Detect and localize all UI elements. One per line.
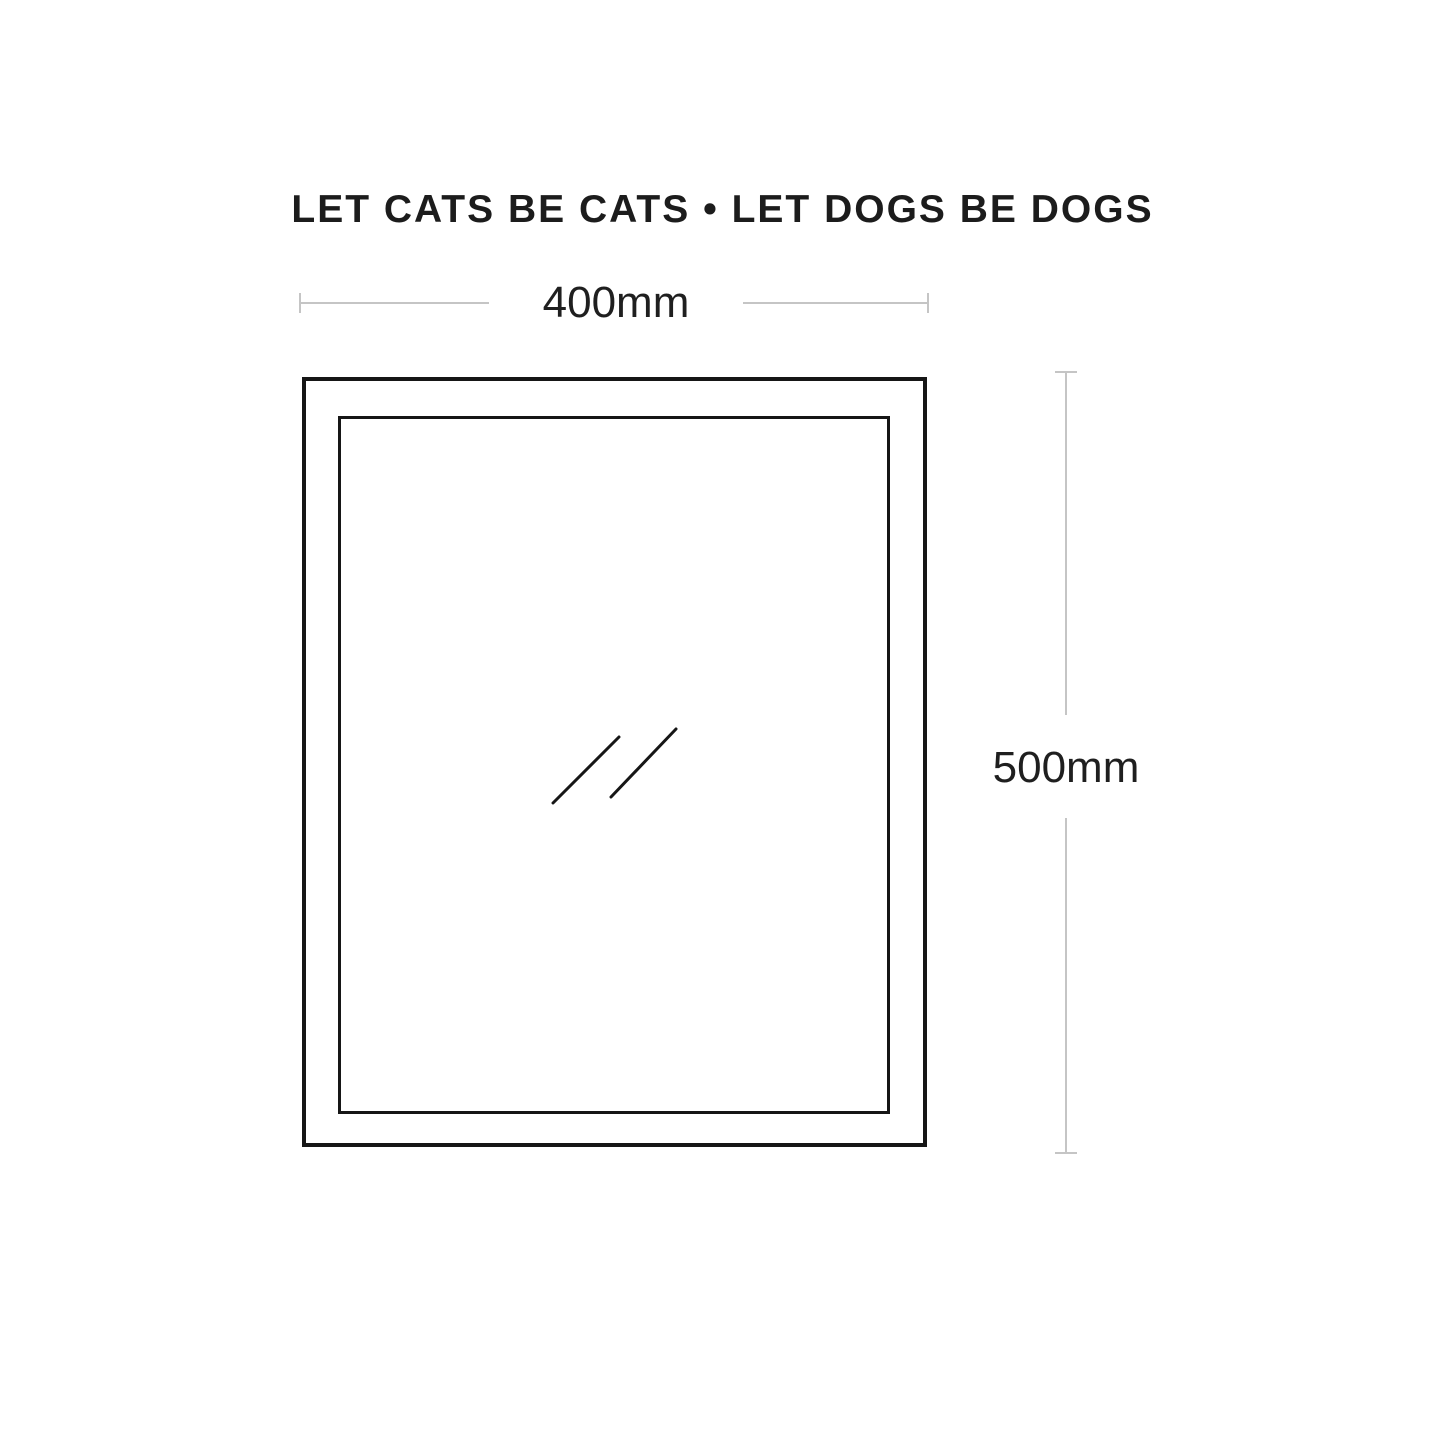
height-dimension-line-bottom (1065, 818, 1067, 1152)
width-dimension-line-right (743, 302, 927, 304)
height-dimension-line-top (1065, 373, 1067, 715)
height-dimension-tick-bottom (1055, 1152, 1077, 1154)
diagram-canvas: LET CATS BE CATS • LET DOGS BE DOGS 400m… (0, 0, 1445, 1445)
width-dimension-label: 400mm (489, 281, 743, 325)
glass-reflection-icon (540, 722, 690, 812)
width-dimension-tick-right (927, 293, 929, 313)
diagram-title: LET CATS BE CATS • LET DOGS BE DOGS (0, 188, 1445, 232)
height-dimension-label: 500mm (966, 746, 1166, 790)
width-dimension-line-left (301, 302, 489, 304)
